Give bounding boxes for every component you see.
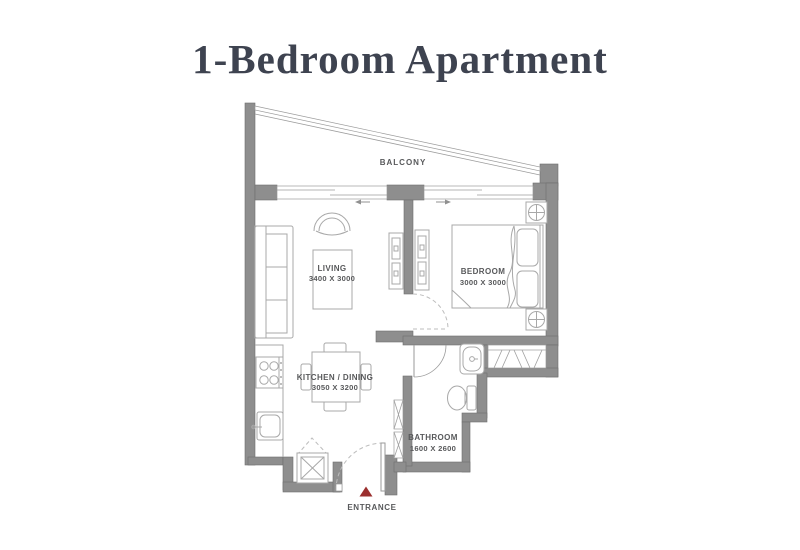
bedroom-closet [488, 345, 546, 368]
toilet [448, 386, 477, 410]
living-window [277, 186, 387, 199]
stove [256, 357, 283, 388]
balcony-label: BALCONY [380, 158, 427, 167]
kitchen-label: KITCHEN / DINING [297, 373, 374, 382]
bedroom-dimensions: 3000 X 3000 [460, 278, 506, 287]
sink [252, 412, 283, 440]
bathroom-door [414, 345, 446, 377]
entrance-marker-icon [360, 487, 373, 497]
service-shaft [394, 400, 403, 458]
kitchen-dimensions: 3050 X 3200 [312, 383, 358, 392]
balcony: BALCONY [255, 106, 540, 175]
slide-direction-arrow-right [436, 200, 451, 205]
living-label: LIVING [317, 264, 346, 273]
wardrobe [415, 230, 429, 290]
entrance-door [381, 443, 385, 491]
washing-machine [297, 438, 328, 483]
nightstand-top [526, 202, 547, 223]
bathroom-label: BATHROOM [408, 433, 458, 442]
slide-direction-arrow-left [355, 200, 370, 205]
tv-unit [389, 233, 403, 289]
nightstand-bottom [526, 309, 547, 330]
bedroom-label: BEDROOM [461, 267, 506, 276]
floor-plan-page: 1-Bedroom Apartment [0, 0, 800, 550]
living-dimensions: 3400 X 3000 [309, 274, 355, 283]
entrance-label: ENTRANCE [347, 503, 396, 512]
sofa [255, 226, 293, 338]
bathtub [460, 344, 484, 374]
bathroom-dimensions: 1600 X 2600 [410, 444, 456, 453]
armchair [314, 213, 350, 235]
bedroom-door [413, 294, 448, 329]
page-title: 1-Bedroom Apartment [192, 36, 608, 82]
floor-plan: 1-Bedroom Apartment [0, 0, 800, 550]
living-room: LIVING 3400 X 3000 [255, 213, 403, 338]
bedroom-window [424, 186, 533, 199]
